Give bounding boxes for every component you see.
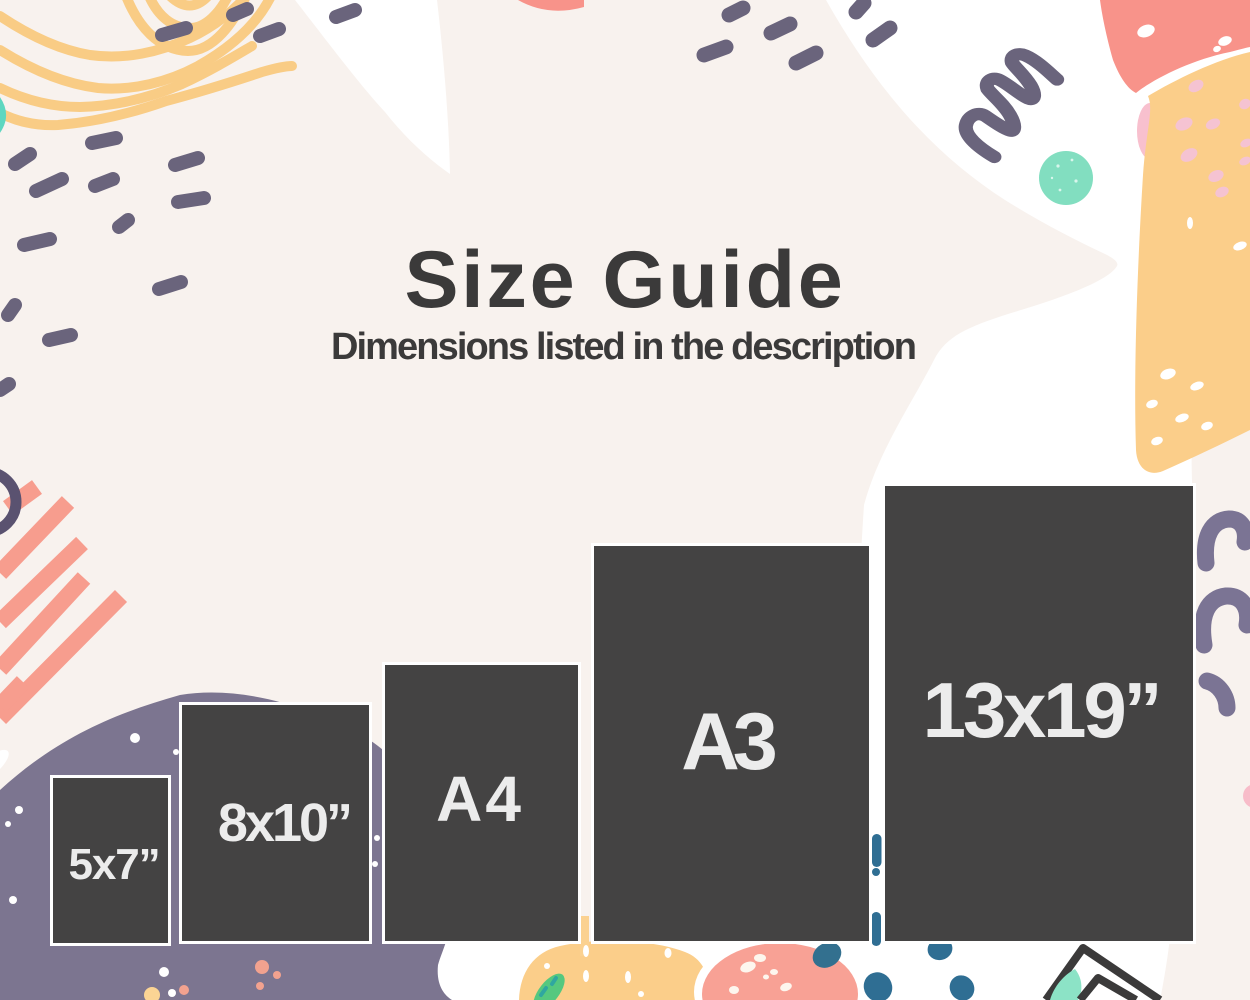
svg-text:A4: A4 (436, 763, 524, 835)
svg-text:Size Guide: Size Guide (404, 235, 845, 325)
svg-text:A3: A3 (681, 697, 775, 787)
svg-text:Dimensions listed in the descr: Dimensions listed in the description (331, 326, 915, 368)
svg-text:5x7”: 5x7” (68, 840, 159, 889)
svg-text:8x10”: 8x10” (218, 793, 350, 853)
svg-text:13x19”: 13x19” (923, 666, 1160, 754)
